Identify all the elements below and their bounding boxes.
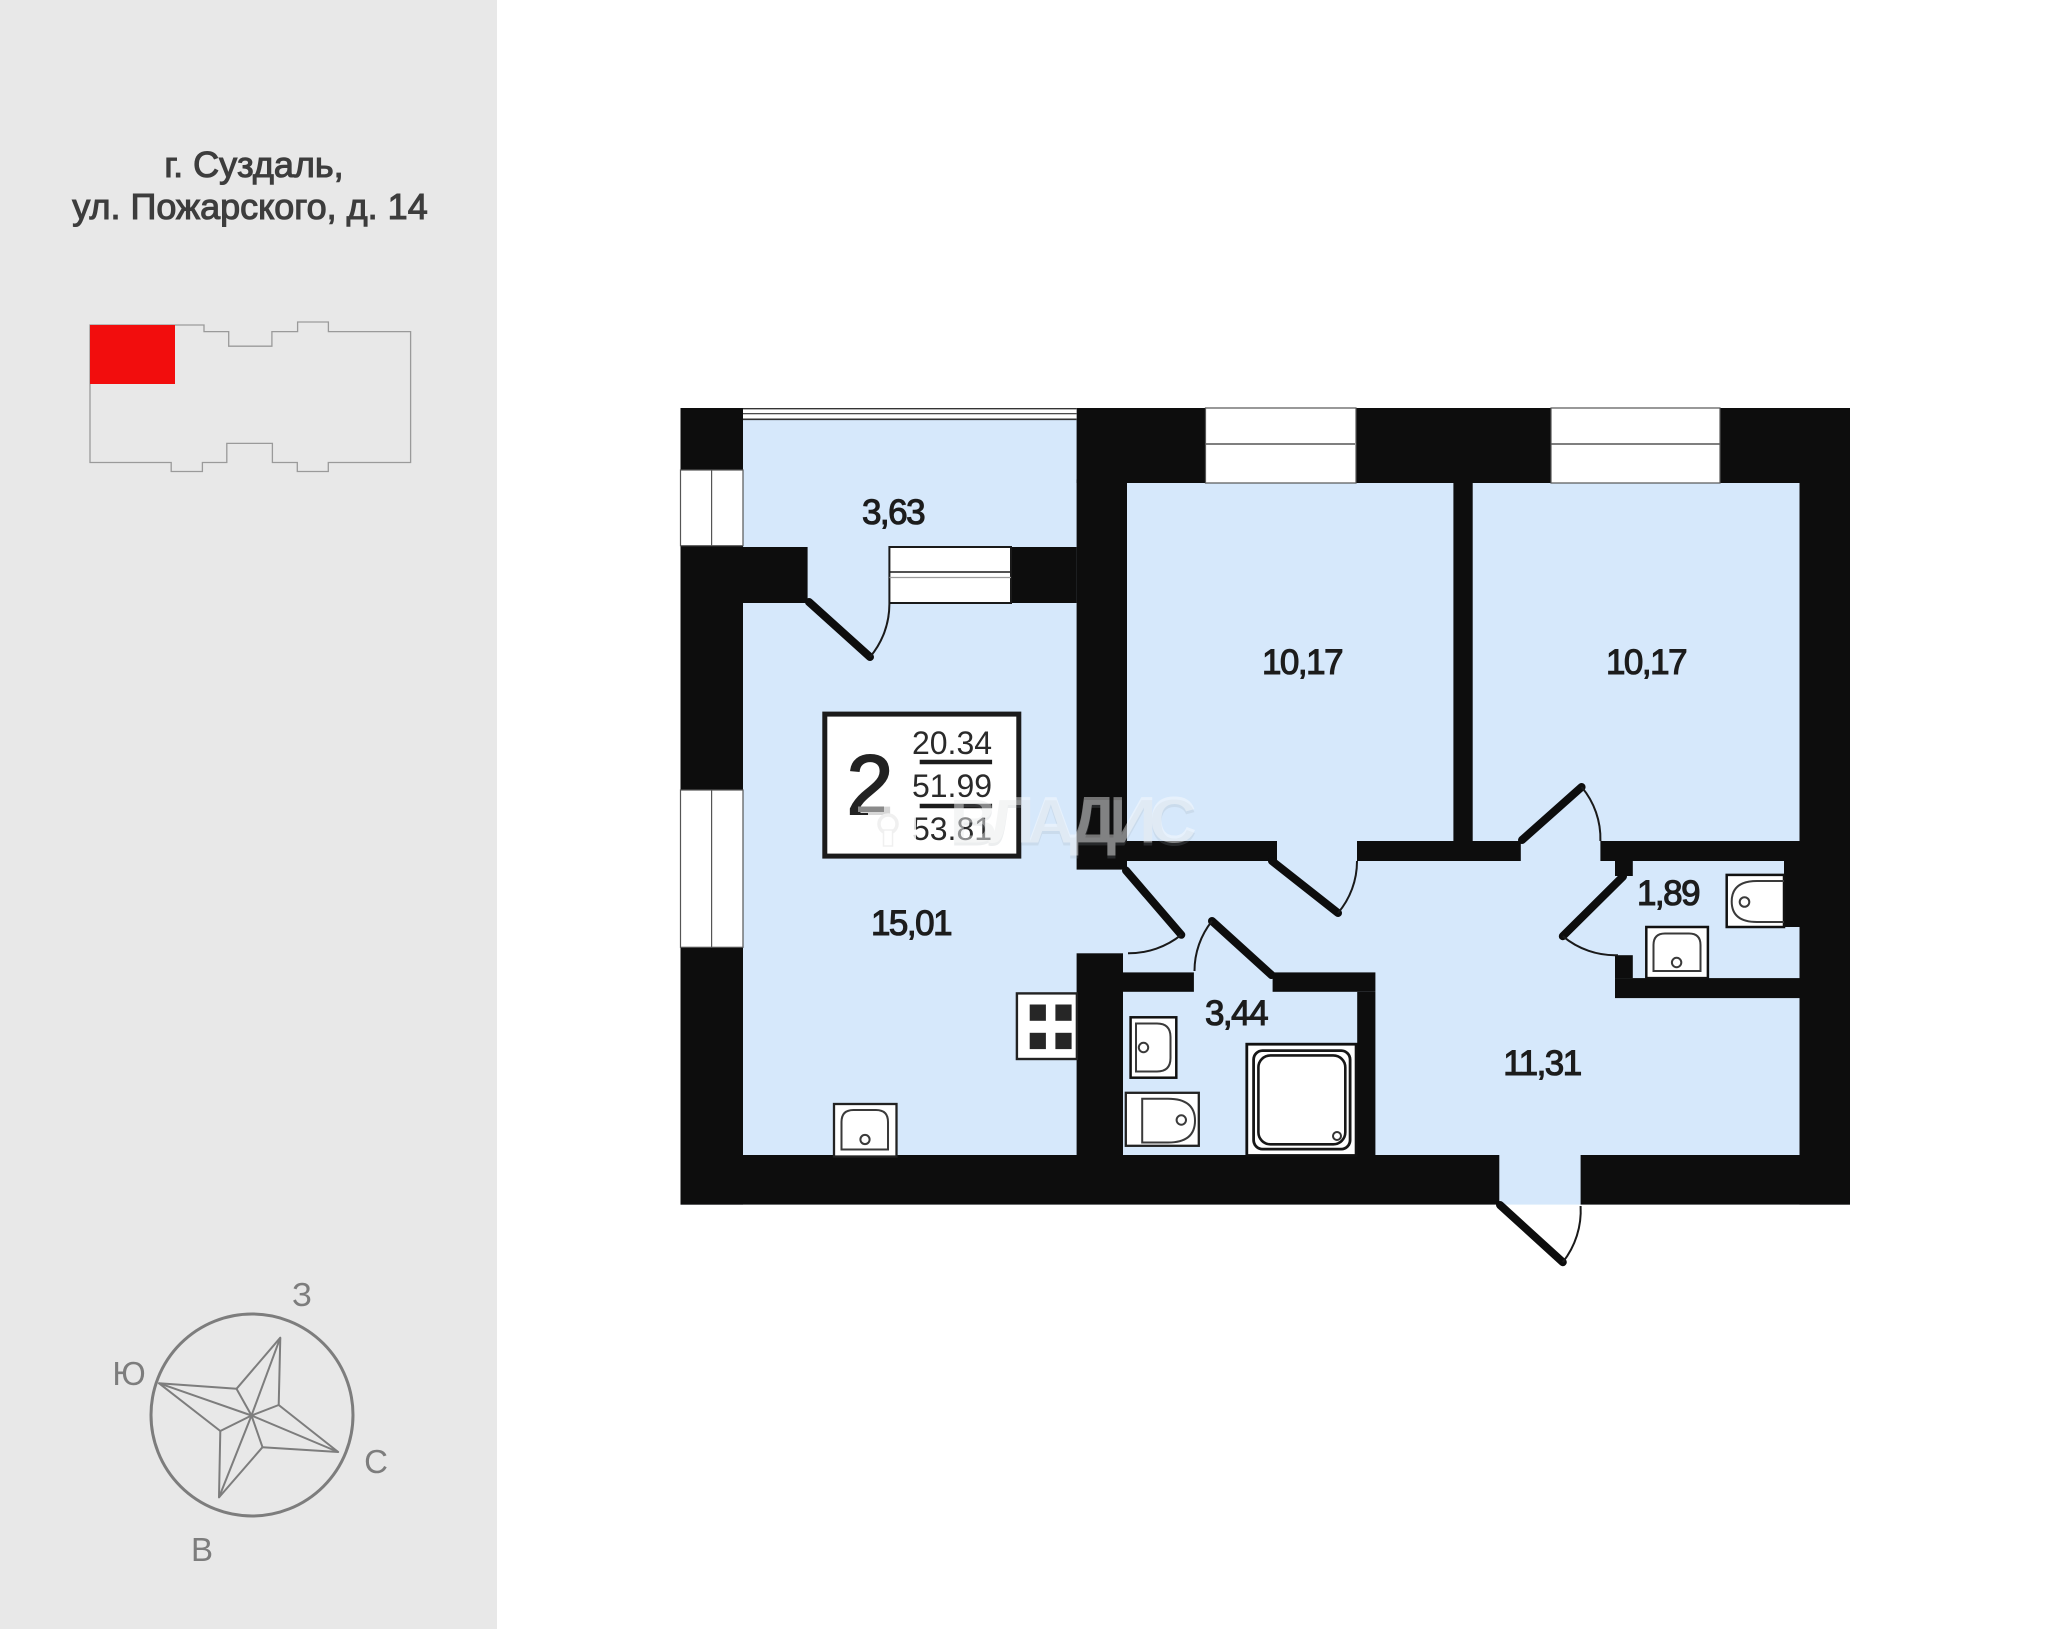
- svg-text:Ю: Ю: [112, 1355, 145, 1392]
- svg-text:ул. Пожарского, д. 14: ул. Пожарского, д. 14: [72, 186, 427, 227]
- svg-text:ВЛАДИС: ВЛАДИС: [950, 783, 1195, 857]
- svg-text:3,44: 3,44: [1205, 994, 1268, 1033]
- svg-text:В: В: [191, 1531, 213, 1568]
- svg-text:г. Суздаль,: г. Суздаль,: [164, 144, 343, 185]
- svg-text:11,31: 11,31: [1503, 1044, 1581, 1083]
- svg-text:С: С: [364, 1443, 388, 1480]
- svg-text:10,17: 10,17: [1606, 643, 1686, 682]
- svg-text:15,01: 15,01: [871, 904, 951, 943]
- svg-text:3,63: 3,63: [862, 493, 924, 532]
- svg-text:10,17: 10,17: [1262, 643, 1342, 682]
- svg-text:З: З: [292, 1276, 312, 1313]
- svg-text:20.34: 20.34: [912, 725, 992, 761]
- svg-text:1,89: 1,89: [1637, 874, 1699, 913]
